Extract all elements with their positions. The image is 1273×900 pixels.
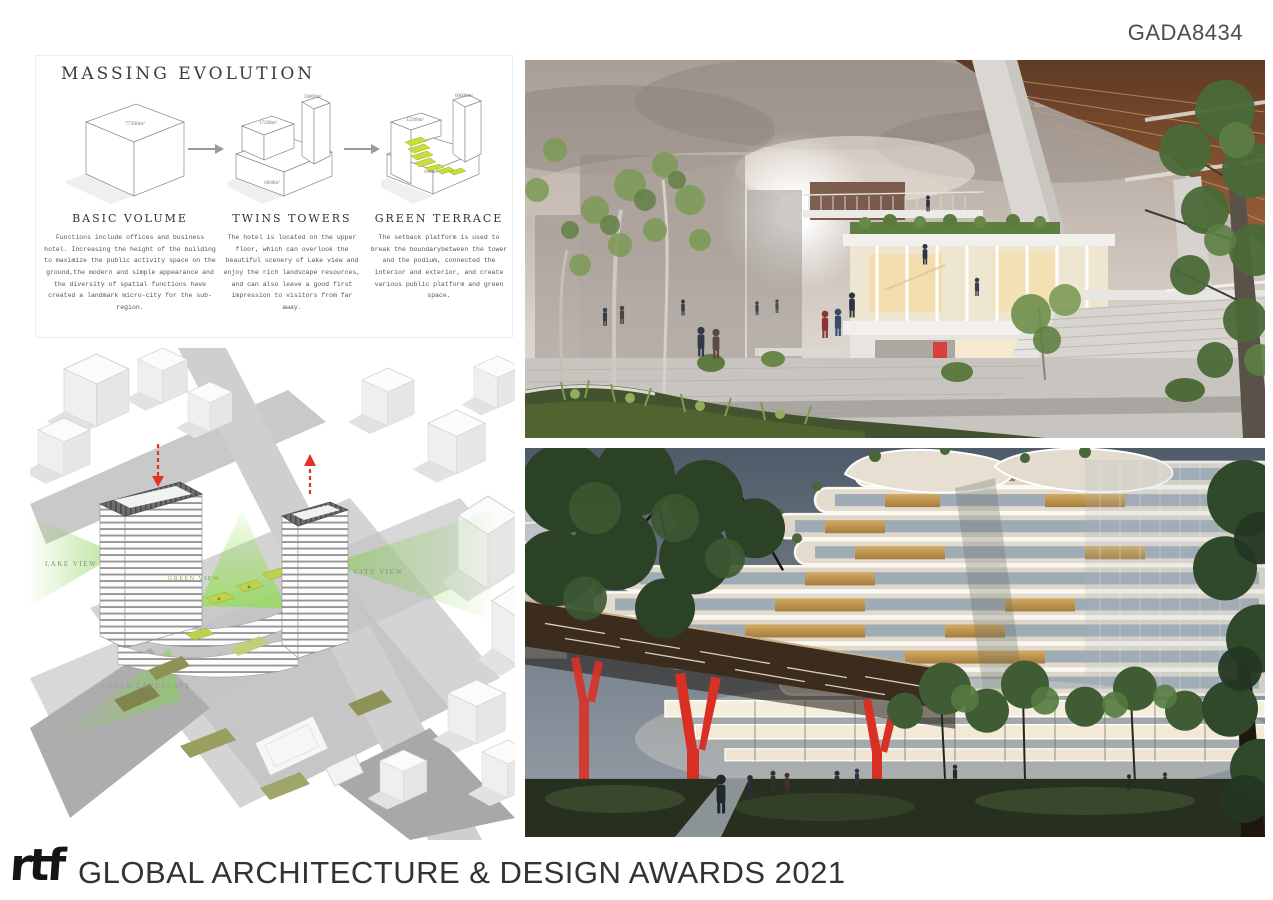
board-id: GADA8434	[1128, 20, 1243, 46]
area-label: 6000m²	[264, 180, 280, 186]
stage-description: The hotel is located on the upper floor,…	[222, 232, 362, 314]
presentation-board: GADA8434 MASSING EVOLUTION 77200m²	[0, 0, 1273, 900]
city-view-label: CITY VIEW	[354, 568, 403, 576]
stage-title: TWINS TOWERS	[222, 212, 362, 225]
lake-view-label: LAKE VIEW	[45, 560, 97, 568]
stage-description: Functions include offices and business h…	[44, 232, 216, 314]
area-label: 60000m²	[455, 93, 473, 99]
area-label: 59000m²	[304, 94, 322, 100]
massing-diagram-green-terrace: 12200m² 60000m² 5000m²	[381, 92, 489, 207]
massing-title: MASSING EVOLUTION	[61, 64, 315, 84]
lake-tower	[100, 482, 202, 648]
terraced-building-render	[525, 448, 1265, 837]
evolution-arrow-icon	[344, 142, 380, 156]
massing-diagram-basic-volume: 77200m²	[66, 92, 196, 207]
ground-landscape	[525, 779, 1265, 837]
green-view-label: GREEN VIEW	[168, 576, 220, 582]
rtf-logo: rtf	[8, 844, 64, 888]
area-label: 17200m²	[259, 120, 277, 126]
stage-description: The setback platform is used to break th…	[370, 232, 508, 302]
massing-diagram-twins-towers: 17200m² 59000m² 6000m²	[228, 92, 340, 207]
city-tower	[282, 502, 348, 658]
massing-evolution-panel: MASSING EVOLUTION 77200m²	[35, 55, 513, 338]
awards-title: GLOBAL ARCHITECTURE & DESIGN AWARDS 2021	[78, 855, 846, 891]
stage-basic-volume: BASIC VOLUME Functions include offices a…	[44, 212, 216, 314]
stage-twins-towers: TWINS TOWERS The hotel is located on the…	[222, 212, 362, 314]
site-axonometric-diagram: LAKE VIEW GREEN VIEW CITY VIEW GREEN LAN…	[30, 348, 515, 840]
green-landscape-label: GREEN LANDSCAPE	[102, 682, 191, 690]
area-label: 77200m²	[125, 121, 145, 127]
entrance-plaza-render	[525, 60, 1265, 438]
tower-up-arrow-icon	[304, 454, 316, 494]
area-label: 12200m²	[406, 117, 424, 123]
office-tower	[302, 97, 330, 164]
stage-title: GREEN TERRACE	[370, 212, 508, 225]
stage-title: BASIC VOLUME	[44, 212, 216, 225]
evolution-arrow-icon	[188, 142, 224, 156]
area-label: 5000m²	[424, 169, 439, 174]
office-tower	[453, 95, 481, 162]
stage-green-terrace: GREEN TERRACE The setback platform is us…	[370, 212, 508, 302]
